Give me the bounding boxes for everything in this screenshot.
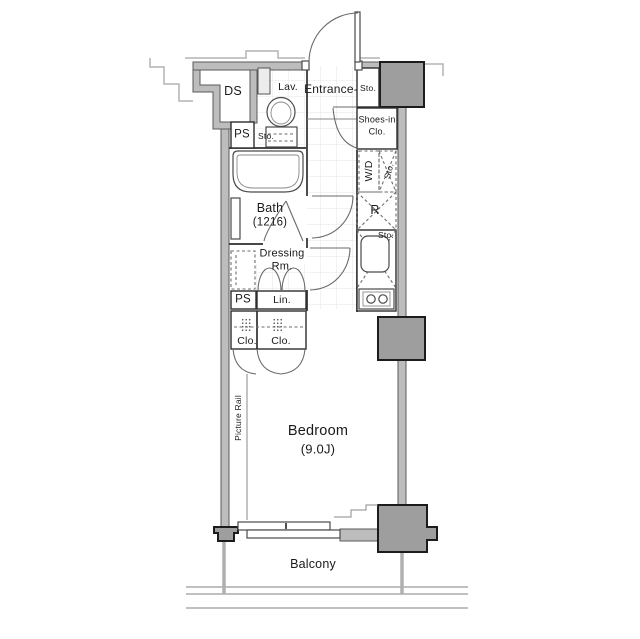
entrance-door-leaf (355, 12, 360, 62)
burner (379, 295, 387, 303)
label-pipe-space-upper: PS (234, 129, 250, 141)
label-bath-size: (1216) (253, 217, 287, 229)
label-kitchen-storage: Sto. (378, 231, 394, 240)
label-linen: Lin. (273, 295, 291, 306)
label-entrance-storage: Sto. (360, 84, 376, 93)
label-washer-dryer: W/D (364, 160, 375, 181)
label-entrance: Entrance- (304, 83, 358, 95)
washer-space (231, 251, 255, 289)
floor-plan: DS PS Lav. Sto. Entrance- Sto. Shoes-in … (0, 0, 640, 639)
label-bedroom: Bedroom (288, 424, 348, 439)
sliding-window-rail (238, 522, 330, 530)
lav-vanity (258, 68, 270, 94)
label-duct-space: DS (224, 85, 242, 98)
bath-counter (231, 198, 240, 239)
label-refrigerator: R (370, 204, 379, 217)
kitchen-sink (361, 236, 389, 272)
burner (367, 295, 375, 303)
balcony-window (238, 522, 340, 538)
closet-doors (233, 349, 305, 374)
label-picture-rail: Picture Rail (234, 395, 243, 441)
label-closet-left: Clo. (237, 336, 256, 347)
label-dressing-room-2: Rm. (272, 262, 293, 273)
label-lav-storage: Sto. (258, 132, 274, 141)
label-shoes-in-closet-2: Clo. (369, 128, 386, 137)
label-pipe-space-lower: PS (235, 294, 251, 306)
entrance-door-swing (309, 13, 358, 62)
label-balcony: Balcony (290, 558, 336, 571)
label-shoes-in-closet: Shoes-in (358, 116, 395, 125)
sliding-window-rail (247, 530, 340, 538)
label-lavatory: Lav. (278, 82, 298, 93)
corner-step-line (334, 505, 378, 517)
label-bath: Bath (257, 202, 284, 215)
label-bedroom-size: (9.0J) (301, 443, 335, 456)
label-closet-right: Clo. (271, 336, 290, 347)
label-dressing-room: Dressing (259, 249, 304, 260)
